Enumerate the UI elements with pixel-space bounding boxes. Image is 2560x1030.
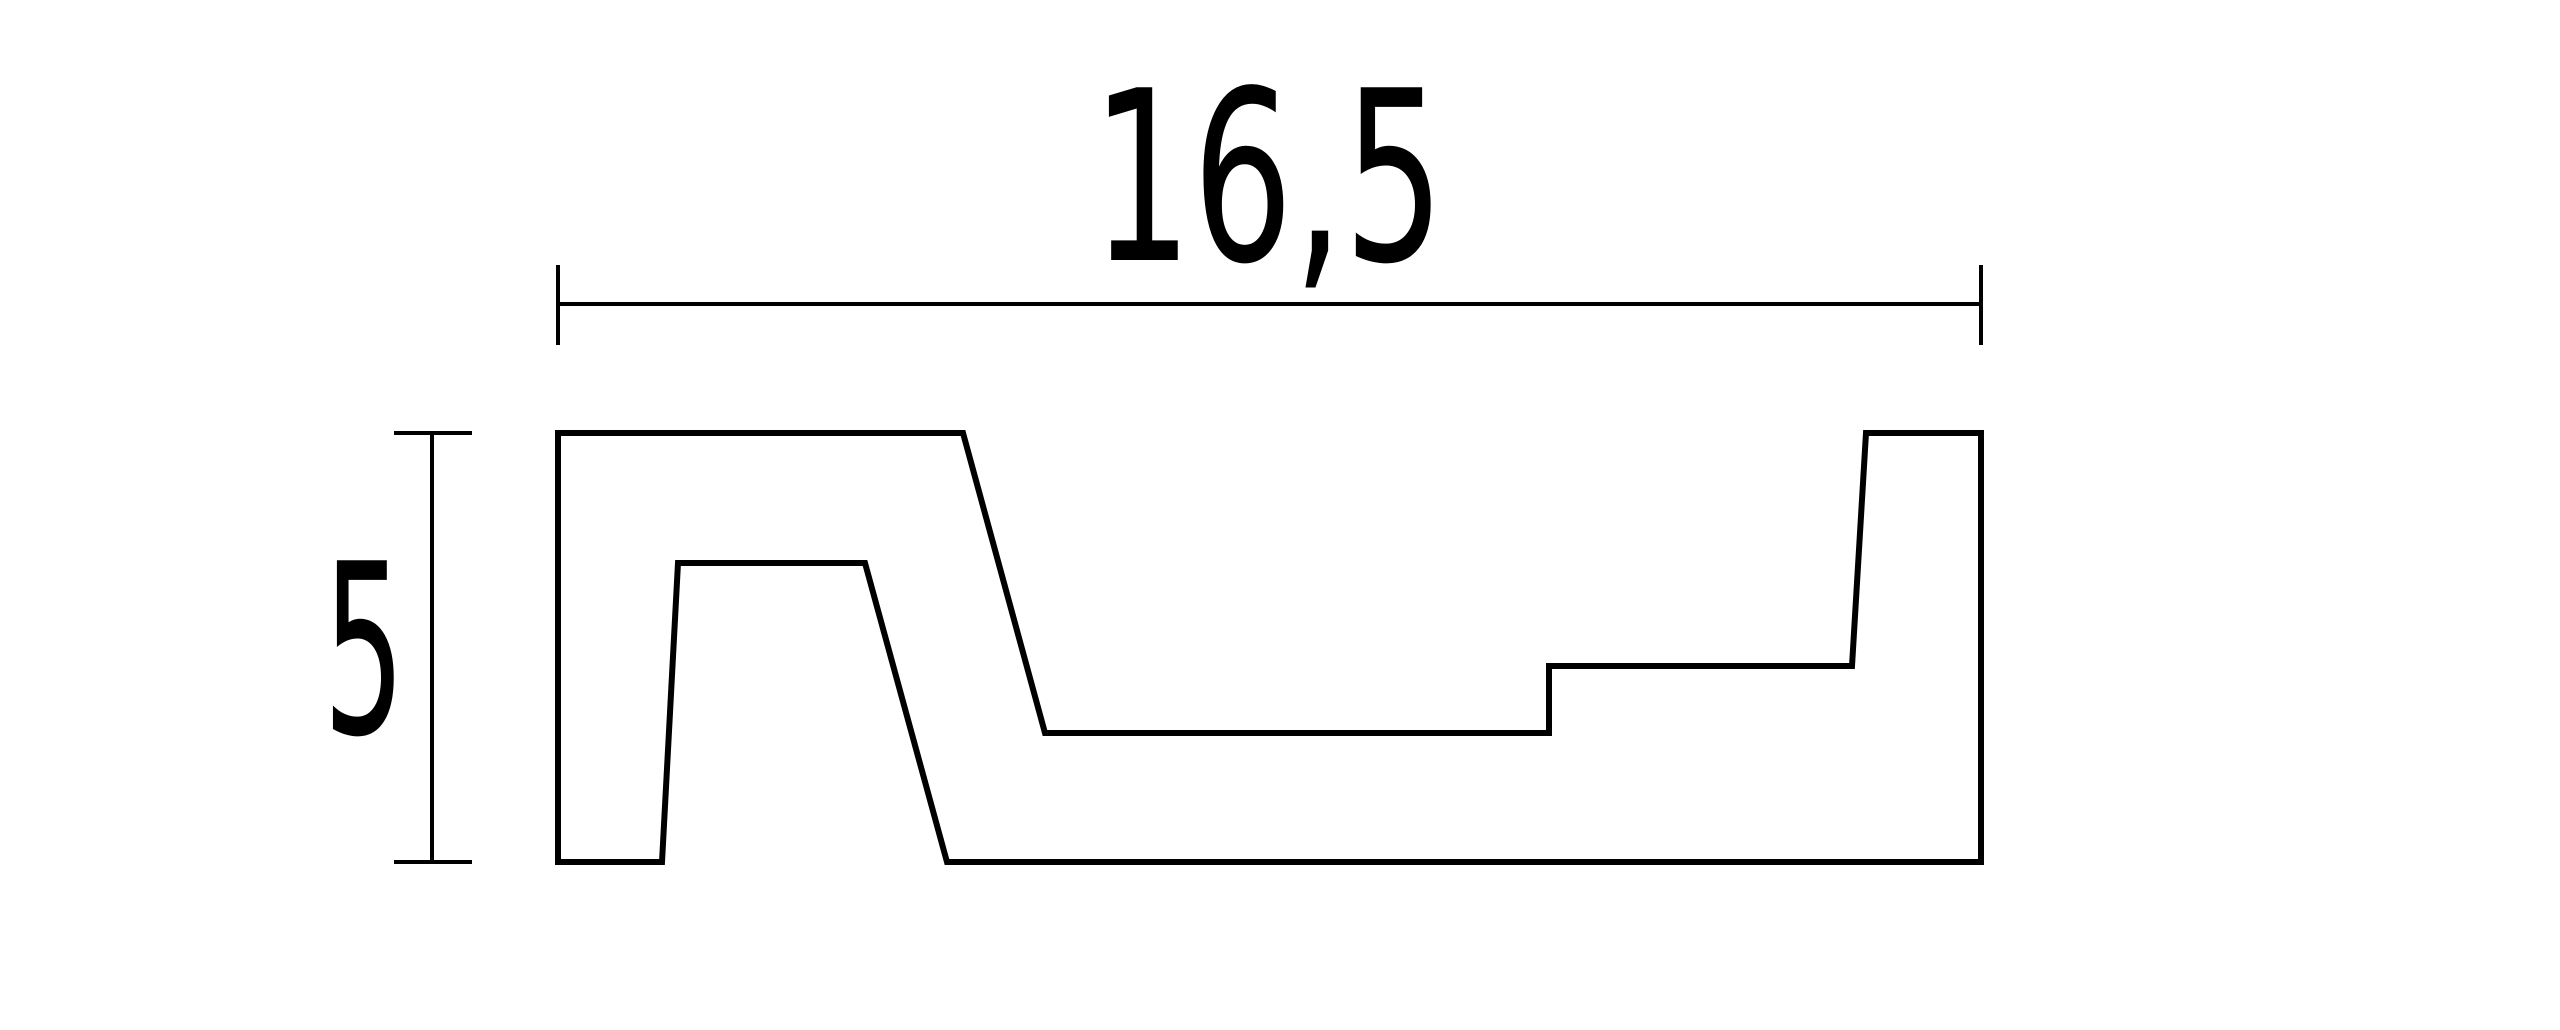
drawing-canvas: 16,5 5 xyxy=(0,0,2560,1030)
height-dimension-label: 5 xyxy=(323,513,405,789)
width-dimension-label: 16,5 xyxy=(1092,40,1445,316)
width-dimension: 16,5 xyxy=(558,40,1981,345)
height-dimension: 5 xyxy=(323,433,472,862)
profile-outline xyxy=(558,433,1981,862)
technical-drawing: 16,5 5 xyxy=(0,0,2560,1030)
